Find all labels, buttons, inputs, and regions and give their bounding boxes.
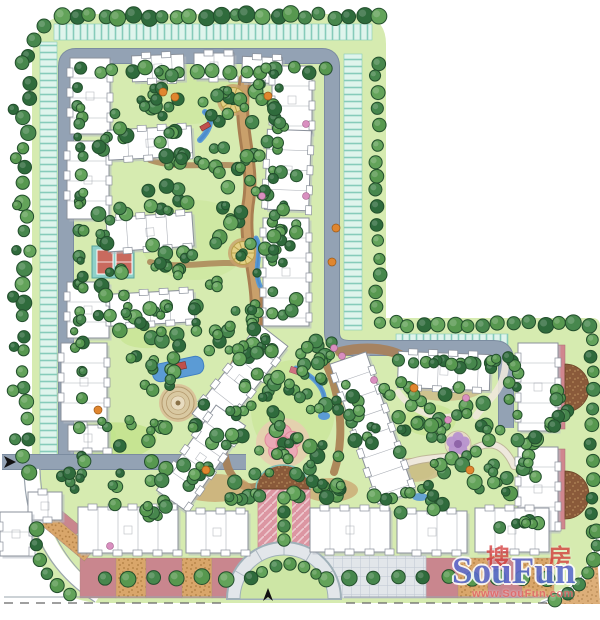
master-plan-drawing	[0, 0, 600, 620]
residential-master-plan: 搜 房 SouFun www.SouFun.com	[0, 0, 600, 620]
